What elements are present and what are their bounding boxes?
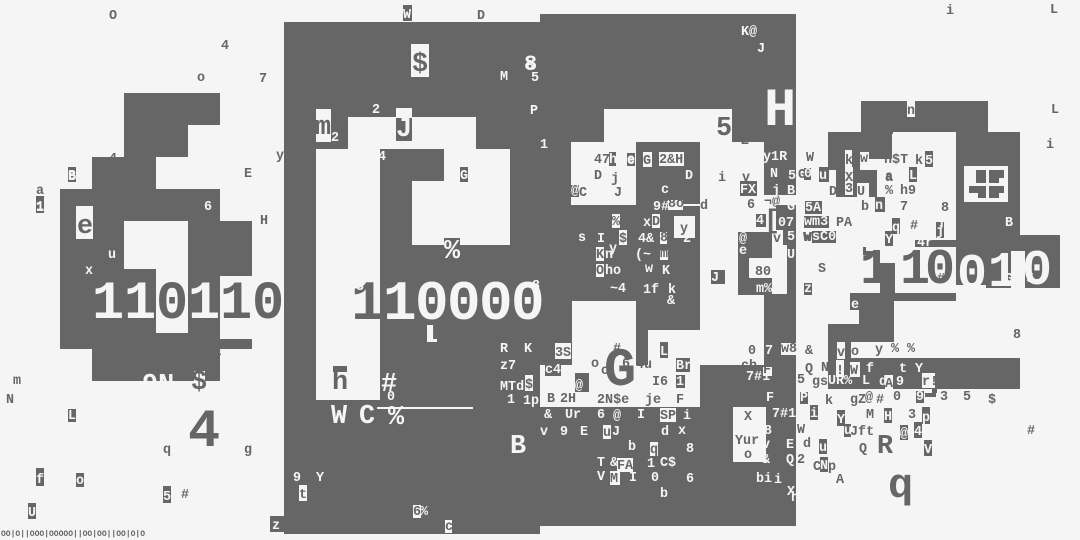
svg-text:n: n (907, 104, 915, 119)
svg-text:j: j (936, 225, 944, 240)
svg-text:8: 8 (660, 231, 668, 246)
svg-text:Yur: Yur (735, 434, 759, 449)
svg-text:x: x (85, 264, 93, 279)
svg-text:J: J (711, 271, 719, 286)
svg-text:o: o (601, 364, 609, 379)
svg-text:2: 2 (331, 131, 339, 146)
svg-text:C: C (579, 186, 587, 201)
svg-text:8: 8 (532, 279, 540, 294)
svg-text:I: I (637, 408, 645, 423)
svg-text:z: z (804, 282, 812, 297)
svg-text:E: E (244, 167, 252, 182)
svg-text:5: 5 (787, 230, 795, 245)
svg-text:w8: w8 (781, 342, 797, 357)
svg-text:j: j (772, 184, 780, 199)
svg-text:y: y (875, 343, 883, 358)
svg-text:L: L (68, 409, 76, 424)
svg-text:0: 0 (957, 247, 987, 304)
svg-text:9: 9 (293, 471, 301, 486)
svg-text:i: i (683, 409, 691, 424)
svg-text:u: u (603, 426, 611, 441)
svg-text:W: W (797, 423, 806, 438)
svg-text:q: q (650, 443, 658, 458)
svg-text:R: R (877, 432, 894, 462)
svg-text:%: % (891, 342, 900, 357)
svg-text:e: e (77, 212, 93, 242)
svg-text:g: g (244, 443, 252, 458)
svg-text:W: W (331, 402, 348, 432)
svg-text:v: v (540, 425, 548, 440)
svg-text:9#: 9# (653, 200, 669, 215)
svg-text:m: m (13, 374, 21, 389)
svg-text:o: o (76, 474, 84, 489)
svg-text:Q: Q (859, 442, 867, 457)
svg-text:8: 8 (686, 442, 694, 457)
svg-text:P: P (800, 391, 808, 406)
svg-text:#: # (181, 488, 189, 503)
svg-text:B: B (68, 169, 76, 184)
svg-text:u: u (819, 441, 827, 456)
svg-text:OO|O||OOO|OOOOO||OO|OO||OO|O|O: OO|O||OOO|OOOOO||OO|OO||OO|O|O (1, 530, 145, 539)
svg-text:k: k (915, 154, 923, 169)
svg-text:e: e (851, 298, 859, 313)
svg-text:D: D (594, 169, 602, 184)
svg-text:#: # (613, 342, 621, 357)
svg-text:9: 9 (560, 425, 568, 440)
svg-text:G: G (1005, 272, 1013, 287)
svg-text:i: i (810, 407, 818, 422)
svg-text:G: G (643, 154, 651, 169)
svg-text:B: B (547, 392, 555, 407)
svg-text:U: U (857, 185, 865, 200)
svg-text:4: 4 (378, 150, 386, 165)
svg-text:1f: 1f (643, 283, 659, 298)
svg-text:q: q (892, 221, 900, 236)
svg-text:%: % (612, 215, 621, 230)
svg-text:B: B (510, 432, 526, 462)
svg-text:M: M (500, 70, 508, 85)
svg-text:j: j (611, 172, 619, 187)
svg-text:1: 1 (36, 200, 44, 215)
svg-text:$: $ (412, 50, 428, 80)
svg-text:e: e (739, 244, 747, 259)
svg-text:7: 7 (259, 72, 267, 87)
svg-text:$: $ (191, 368, 207, 398)
svg-text:2&H: 2&H (659, 153, 683, 168)
svg-text:1: 1 (92, 274, 124, 335)
svg-text:m: m (660, 247, 668, 262)
svg-text:u: u (819, 169, 827, 184)
svg-text:B: B (787, 184, 795, 199)
svg-text:E: E (786, 438, 794, 453)
svg-text:wm3: wm3 (804, 215, 828, 230)
svg-text:3: 3 (908, 408, 916, 423)
svg-text:@: @ (900, 427, 908, 442)
svg-text:d: d (803, 437, 811, 452)
svg-text:1: 1 (220, 274, 252, 335)
svg-text:sC0: sC0 (812, 230, 836, 245)
svg-text:K@: K@ (741, 25, 757, 40)
svg-text:3: 3 (356, 280, 364, 295)
svg-text:i: i (774, 473, 782, 488)
svg-text:o: o (591, 357, 599, 372)
svg-text:1: 1 (540, 138, 548, 153)
svg-text:(~: (~ (635, 248, 651, 263)
svg-text:&: & (213, 345, 221, 360)
svg-text:5: 5 (1026, 272, 1034, 287)
svg-text:&: & (667, 294, 675, 309)
svg-text:m%: m% (756, 282, 773, 297)
svg-text:#: # (937, 272, 945, 287)
svg-text:4u: 4u (636, 358, 652, 373)
svg-text:D: D (685, 169, 693, 184)
svg-text:P: P (530, 104, 538, 119)
svg-text:9: 9 (285, 260, 293, 275)
svg-text:0: 0 (748, 344, 756, 359)
svg-text:4&: 4& (638, 232, 654, 247)
svg-text:m: m (315, 113, 331, 143)
svg-text:F: F (676, 393, 684, 408)
svg-text:~4: ~4 (610, 282, 626, 297)
svg-text:L: L (862, 374, 870, 389)
svg-text:F: F (766, 391, 774, 406)
svg-text:1: 1 (647, 457, 655, 472)
svg-text:5: 5 (716, 114, 732, 144)
svg-text:Y: Y (885, 233, 894, 248)
svg-text:N: N (820, 459, 828, 474)
svg-text:7: 7 (765, 344, 773, 359)
svg-text:b: b (628, 440, 636, 455)
svg-text:@: @ (571, 184, 579, 199)
svg-text:W: W (403, 8, 412, 23)
svg-text:%: % (444, 237, 461, 267)
svg-text:J: J (612, 425, 620, 440)
svg-text:2N$e: 2N$e (597, 393, 629, 408)
svg-text:E: E (580, 425, 588, 440)
svg-text:4: 4 (109, 152, 117, 167)
svg-text:C: C (359, 402, 375, 432)
svg-text:b: b (660, 487, 668, 502)
svg-text:C$: C$ (660, 456, 676, 471)
svg-text:U: U (28, 506, 36, 521)
svg-text:b: b (861, 200, 869, 215)
svg-text:0: 0 (893, 390, 901, 405)
svg-text:6: 6 (597, 408, 605, 423)
svg-text:r!: r! (922, 375, 938, 390)
svg-text:gZ: gZ (850, 393, 866, 408)
svg-text:47: 47 (594, 153, 610, 168)
svg-text:5: 5 (797, 373, 805, 388)
svg-text:0: 0 (479, 272, 513, 336)
svg-text:W: W (806, 151, 815, 166)
svg-text:p: p (922, 411, 930, 426)
svg-text:4: 4 (221, 39, 229, 54)
svg-text:A: A (885, 377, 894, 392)
svg-text:M: M (610, 472, 618, 487)
svg-text:8: 8 (1014, 241, 1022, 256)
svg-text:n: n (875, 199, 883, 214)
svg-text:ho: ho (605, 264, 621, 279)
svg-text:$: $ (619, 232, 627, 247)
svg-text:i: i (1046, 138, 1054, 153)
svg-text:X: X (744, 410, 753, 425)
svg-text:%: % (420, 505, 429, 520)
svg-text:F: F (763, 363, 771, 378)
svg-text:3S: 3S (555, 346, 571, 361)
svg-text:2H: 2H (560, 392, 576, 407)
svg-text:Y: Y (316, 471, 325, 486)
svg-text:FA: FA (617, 459, 634, 474)
svg-text:5: 5 (788, 169, 796, 184)
svg-text:6: 6 (686, 472, 694, 487)
svg-text:@: @ (613, 409, 621, 424)
svg-text:3: 3 (940, 390, 948, 405)
svg-text:%: % (907, 342, 916, 357)
svg-text:D: D (652, 215, 660, 230)
svg-text:8: 8 (764, 424, 772, 439)
svg-text:Ur: Ur (565, 408, 581, 423)
svg-text:9N: 9N (142, 371, 174, 401)
svg-text:v: v (762, 438, 770, 453)
svg-text:Br: Br (676, 359, 692, 374)
svg-text:bi: bi (756, 472, 772, 487)
svg-text:L: L (1050, 3, 1058, 18)
svg-text:&: & (762, 453, 770, 468)
svg-text:$: $ (525, 378, 533, 393)
svg-text:h: h (332, 368, 348, 398)
svg-text:$: $ (988, 393, 996, 408)
svg-text:x: x (678, 424, 686, 439)
svg-text:0: 0 (804, 167, 812, 182)
svg-text:%: % (885, 184, 894, 199)
svg-text:2: 2 (372, 103, 380, 118)
svg-text:2: 2 (797, 453, 805, 468)
svg-text:1: 1 (507, 393, 515, 408)
svg-text:8: 8 (524, 52, 537, 77)
svg-text:s: s (578, 231, 586, 246)
svg-text:n: n (605, 248, 613, 263)
svg-text:N: N (770, 167, 778, 182)
svg-text:e: e (627, 153, 635, 168)
svg-text:@: @ (575, 379, 583, 394)
svg-text:4: 4 (188, 402, 220, 463)
svg-text:q: q (163, 443, 171, 458)
svg-text:9: 9 (797, 471, 805, 486)
svg-text:3: 3 (845, 182, 853, 197)
svg-text:&: & (544, 408, 552, 423)
svg-text:Q: Q (786, 453, 794, 468)
svg-text:W: W (850, 364, 859, 379)
svg-text:4r: 4r (917, 236, 933, 251)
svg-text:S: S (818, 262, 826, 277)
svg-text:je: je (645, 393, 661, 408)
svg-text:FX: FX (740, 183, 757, 198)
svg-text:y: y (680, 222, 688, 237)
svg-text:4: 4 (756, 214, 764, 229)
svg-text:gs: gs (812, 375, 828, 390)
svg-text:G: G (460, 169, 468, 184)
svg-text:7: 7 (900, 200, 908, 215)
svg-text:f: f (36, 473, 44, 488)
svg-text:i: i (718, 171, 726, 186)
svg-text:a: a (885, 171, 893, 186)
svg-text:u: u (108, 248, 116, 263)
svg-text:J: J (614, 186, 622, 201)
svg-text:y1R: y1R (763, 150, 788, 165)
svg-text:K: K (524, 342, 533, 357)
svg-text:0: 0 (156, 274, 188, 335)
svg-text:x: x (643, 216, 651, 231)
svg-text:!: ! (836, 364, 844, 379)
svg-text:K: K (596, 248, 605, 263)
svg-text:5: 5 (963, 390, 971, 405)
svg-text:V: V (597, 470, 606, 485)
svg-text:0: 0 (387, 390, 395, 405)
svg-text:@: @ (865, 391, 873, 406)
svg-text:R: R (500, 342, 509, 357)
svg-text:5A: 5A (805, 201, 822, 216)
svg-text:K: K (662, 264, 671, 279)
svg-text:O: O (109, 9, 117, 24)
svg-text:X: X (787, 485, 796, 500)
svg-text:H: H (260, 214, 268, 229)
svg-text:o: o (197, 71, 205, 86)
svg-text:y: y (307, 259, 315, 274)
svg-text:80: 80 (755, 265, 771, 280)
svg-text:P: P (940, 374, 948, 389)
svg-text:1: 1 (188, 274, 220, 335)
svg-text:1p: 1p (523, 394, 539, 409)
svg-text:8: 8 (1013, 328, 1021, 343)
svg-text:L: L (660, 345, 668, 360)
svg-text:A: A (836, 473, 845, 488)
svg-text:0: 0 (252, 274, 284, 335)
svg-text:8o: 8o (668, 197, 684, 212)
svg-text:G: G (787, 200, 795, 215)
svg-text:1: 1 (676, 375, 684, 390)
svg-text:d: d (700, 199, 708, 214)
svg-text:V: V (924, 443, 933, 458)
svg-text:h9: h9 (900, 184, 916, 199)
svg-text:h: h (609, 153, 617, 168)
svg-text:I: I (597, 232, 605, 247)
svg-text:%: % (388, 403, 405, 433)
svg-text:9: 9 (916, 390, 924, 405)
svg-text:9: 9 (896, 375, 904, 390)
svg-text:c: c (445, 520, 453, 535)
svg-text:#: # (1027, 424, 1035, 439)
svg-text:L: L (1051, 103, 1059, 118)
svg-text:t: t (299, 488, 307, 503)
svg-text:H: H (764, 81, 796, 142)
svg-text:v: v (837, 346, 845, 361)
svg-text:6: 6 (413, 505, 421, 520)
svg-text:a: a (36, 184, 44, 199)
svg-text:z: z (272, 519, 280, 534)
svg-text:Z: Z (741, 134, 749, 149)
svg-text:H: H (884, 410, 892, 425)
svg-text:u: u (844, 424, 852, 439)
svg-text:8: 8 (941, 201, 949, 216)
svg-text:1: 1 (124, 274, 156, 335)
svg-text:N: N (6, 393, 14, 408)
svg-text:o: o (744, 448, 752, 463)
svg-text:6: 6 (747, 198, 755, 213)
svg-text:i: i (946, 4, 954, 19)
svg-text:v: v (773, 232, 781, 247)
svg-text:D: D (829, 185, 837, 200)
svg-text:#: # (876, 393, 884, 408)
svg-text:1: 1 (383, 272, 417, 336)
svg-text:q: q (888, 462, 913, 510)
svg-text:y: y (276, 149, 284, 164)
svg-text:J: J (757, 42, 765, 57)
svg-text:D: D (477, 9, 485, 24)
svg-text:I6: I6 (652, 375, 668, 390)
svg-text:z7: z7 (500, 359, 516, 374)
svg-text:c: c (661, 183, 669, 198)
svg-text:U: U (787, 248, 795, 263)
svg-text:PA: PA (836, 216, 853, 231)
svg-text:T: T (427, 318, 443, 348)
svg-text:SP: SP (660, 409, 676, 424)
svg-text:c4: c4 (545, 363, 561, 378)
svg-text:6: 6 (622, 357, 630, 372)
svg-text:J: J (396, 115, 412, 145)
svg-text:d: d (661, 425, 669, 440)
svg-text:p: p (828, 460, 836, 475)
svg-text:O: O (596, 264, 604, 279)
svg-text:0: 0 (651, 471, 659, 486)
svg-text:5: 5 (925, 154, 933, 169)
svg-text:5: 5 (163, 490, 171, 505)
svg-text:6: 6 (204, 200, 212, 215)
svg-text:k: k (845, 154, 853, 169)
svg-text:&: & (805, 344, 813, 359)
svg-text:1: 1 (132, 248, 140, 263)
svg-text:07: 07 (778, 216, 794, 231)
svg-text:B: B (1005, 216, 1013, 231)
svg-text:k: k (825, 394, 833, 409)
svg-text:w: w (645, 262, 653, 277)
svg-text:T: T (597, 456, 605, 471)
svg-text:o: o (851, 345, 859, 360)
svg-text:4: 4 (914, 425, 922, 440)
svg-text:7#1#: 7#1# (772, 407, 804, 422)
svg-text:M: M (866, 408, 874, 423)
svg-text:n$T: n$T (884, 153, 908, 168)
svg-text:w: w (860, 152, 868, 167)
svg-text:L: L (909, 169, 917, 184)
svg-text:1: 1 (540, 0, 548, 15)
svg-text:0: 0 (447, 272, 481, 336)
svg-text:1: 1 (860, 242, 890, 299)
svg-text:Jft: Jft (850, 425, 874, 440)
svg-text:#: # (910, 219, 918, 234)
